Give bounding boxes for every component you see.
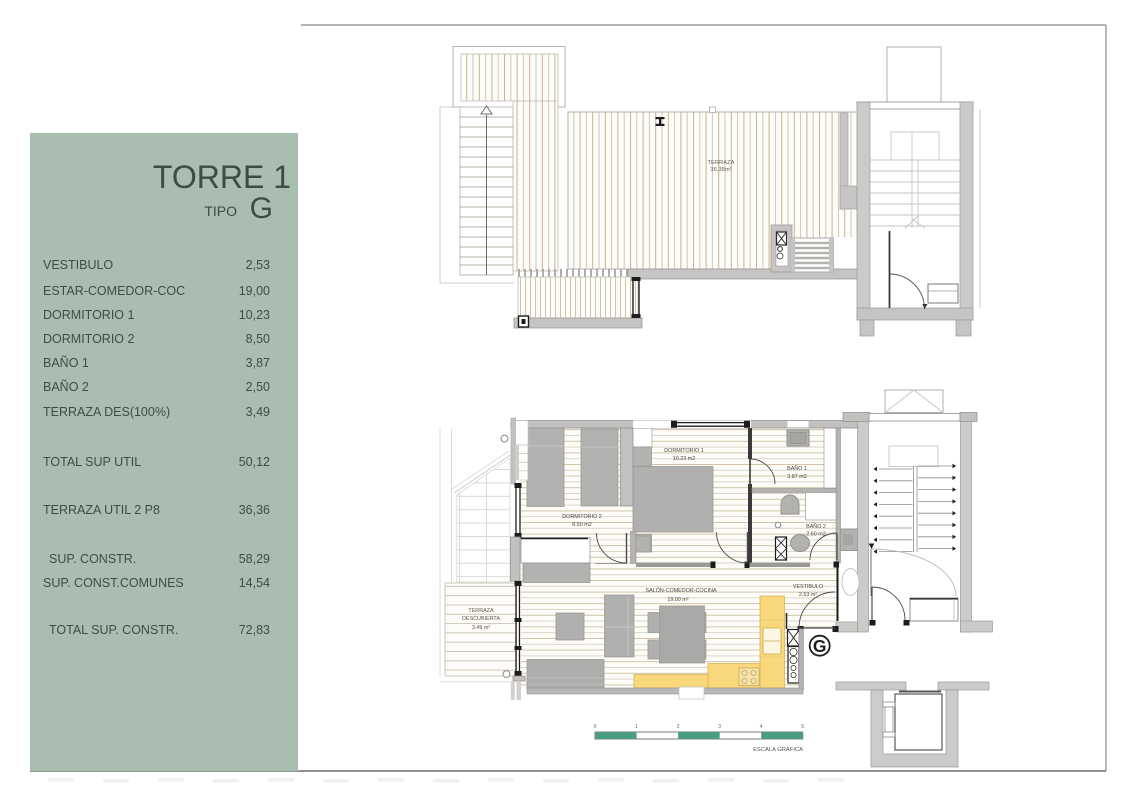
svg-text:2,50: 2,50 [246,380,270,394]
svg-text:G: G [813,636,827,656]
svg-text:2: 2 [677,724,680,730]
svg-text:8.50 m2: 8.50 m2 [572,522,591,528]
svg-text:TOTAL SUP UTIL: TOTAL SUP UTIL [43,455,141,469]
svg-text:BAÑO 1: BAÑO 1 [787,465,807,472]
svg-text:72,83: 72,83 [239,623,270,637]
svg-text:50,12: 50,12 [239,455,270,469]
svg-text:G: G [250,192,273,225]
svg-text:19.00 m²: 19.00 m² [667,597,688,603]
svg-text:TOTAL SUP. CONSTR.: TOTAL SUP. CONSTR. [49,623,178,637]
svg-text:2,53: 2,53 [246,258,270,272]
svg-text:VESTIBULO: VESTIBULO [43,258,113,272]
svg-text:SALÓN-COMEDOR-COCINA: SALÓN-COMEDOR-COCINA [646,587,717,594]
svg-text:BAÑO 1: BAÑO 1 [43,356,89,370]
svg-text:TERRAZA: TERRAZA [707,160,734,166]
svg-text:DORMITORIO 2: DORMITORIO 2 [43,332,134,346]
svg-text:58,29: 58,29 [239,552,270,566]
svg-text:BAÑO 2: BAÑO 2 [806,523,826,530]
svg-text:TERRAZA DES(100%): TERRAZA DES(100%) [43,405,170,419]
svg-text:0: 0 [594,724,597,730]
svg-text:19,00: 19,00 [239,284,270,298]
svg-text:TORRE 1: TORRE 1 [153,159,291,195]
svg-text:8,50: 8,50 [246,332,270,346]
svg-text:4: 4 [760,724,763,730]
svg-text:10.23 m2: 10.23 m2 [673,456,695,462]
svg-text:3,87: 3,87 [246,356,270,370]
svg-text:2.53 m²: 2.53 m² [799,592,817,598]
svg-text:TERRAZA: TERRAZA [468,608,494,614]
svg-text:SUP. CONSTR.: SUP. CONSTR. [49,552,136,566]
svg-text:ESTAR-COMEDOR-COC: ESTAR-COMEDOR-COC [43,284,185,298]
svg-text:SUP. CONST.COMUNES: SUP. CONST.COMUNES [43,576,184,590]
svg-text:36,36: 36,36 [239,503,270,517]
svg-text:DESCUBIERTA: DESCUBIERTA [462,616,500,622]
svg-text:BAÑO 2: BAÑO 2 [43,380,89,394]
svg-text:3: 3 [718,724,721,730]
svg-text:5: 5 [801,724,804,730]
svg-text:DORMITORIO 2: DORMITORIO 2 [562,514,601,520]
svg-text:2.50 m2: 2.50 m2 [806,532,825,538]
svg-text:3,49: 3,49 [246,405,270,419]
svg-text:DORMITORIO 1: DORMITORIO 1 [664,448,703,454]
svg-text:3.49 m²: 3.49 m² [472,625,490,631]
svg-text:10,23: 10,23 [239,308,270,322]
svg-text:TIPO: TIPO [204,203,237,219]
svg-text:14,54: 14,54 [239,576,270,590]
svg-text:DORMITORIO 1: DORMITORIO 1 [43,308,134,322]
svg-text:3.87 m2: 3.87 m2 [787,474,806,480]
svg-text:TERRAZA UTIL 2 P8: TERRAZA UTIL 2 P8 [43,503,160,517]
svg-text:36,36m²: 36,36m² [710,167,731,173]
svg-text:1: 1 [635,724,638,730]
svg-text:VESTIBULO: VESTIBULO [793,584,823,590]
svg-text:ESCALA GRAFICA: ESCALA GRAFICA [753,747,803,753]
